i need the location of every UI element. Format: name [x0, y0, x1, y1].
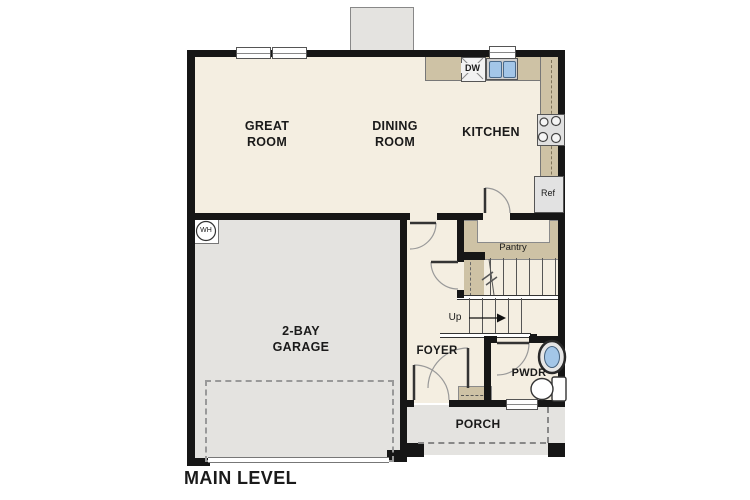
porch-side-dashed: [547, 407, 549, 443]
window-sill: [273, 53, 306, 54]
wall-foyer-bottom-b: [449, 400, 506, 407]
stove: [537, 114, 565, 146]
up-label: Up: [444, 312, 466, 323]
plan-title: MAIN LEVEL: [184, 468, 297, 489]
wall-pwdr-top-b: [529, 336, 565, 343]
great-room-window-1: [236, 47, 271, 59]
wall-garage-top: [187, 213, 410, 220]
window-sill: [490, 52, 515, 53]
sink-basin-left: [489, 61, 502, 78]
porch-label: PORCH: [450, 416, 506, 432]
porch-post-right: [548, 443, 565, 457]
foyer-label: FOYER: [412, 345, 462, 358]
stair-lower-flight: [457, 298, 530, 333]
window-sill: [507, 404, 537, 405]
stair-upper-flight: [478, 258, 558, 295]
fireplace: [350, 7, 414, 53]
floor-plan: GREAT ROOM DINING ROOM KITCHEN 2-BAY GAR…: [0, 0, 750, 500]
wall-foyer-bottom-c: [536, 400, 565, 407]
pantry-walk-area: [477, 220, 550, 243]
wall-left: [187, 50, 195, 466]
garage-door-swing-dashed: [205, 380, 394, 462]
wall-right: [558, 50, 565, 407]
wall-foyer-bottom-a: [400, 400, 414, 407]
dw-label: DW: [461, 63, 484, 73]
ref-label: Ref: [534, 188, 562, 198]
wall-closet-jamb: [457, 290, 464, 298]
dining-room-label: DINING ROOM: [360, 118, 430, 150]
great-room-label: GREAT ROOM: [232, 118, 302, 150]
porch-window: [506, 399, 538, 410]
wall-pwdr-left: [484, 336, 491, 403]
wall-garage-hall: [400, 213, 407, 457]
window-sill: [237, 53, 270, 54]
kitchen-label: KITCHEN: [454, 124, 528, 140]
great-room-window-2: [272, 47, 307, 59]
pantry-label: Pantry: [483, 242, 543, 253]
stair-closet-dashed: [470, 257, 471, 296]
sink-basin-right: [503, 61, 516, 78]
garage-label: 2-BAY GARAGE: [264, 323, 338, 355]
wall-dining-pantry-b: [510, 213, 565, 220]
powder-label: PWDR: [506, 367, 552, 380]
wall-pantry-bottom-stub: [457, 252, 485, 260]
garage-door: [208, 457, 389, 463]
porch-edge-dashed: [418, 442, 546, 444]
kitchen-sink: [486, 58, 518, 80]
wh-label: WH: [194, 227, 218, 234]
